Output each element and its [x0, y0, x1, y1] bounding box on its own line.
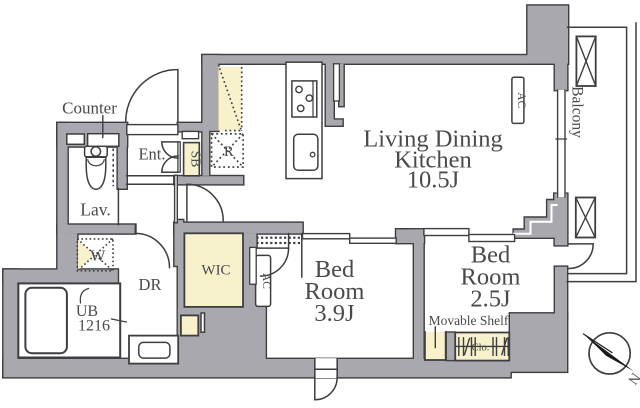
svg-text:WIC: WIC	[201, 263, 230, 279]
svg-text:R: R	[224, 144, 234, 160]
svg-text:Movable Shelf: Movable Shelf	[429, 313, 509, 328]
svg-text:1216: 1216	[78, 318, 110, 335]
svg-text:3.9J: 3.9J	[314, 300, 355, 327]
svg-text:DR: DR	[139, 275, 162, 294]
svg-text:AC: AC	[515, 92, 527, 108]
svg-text:2.5J: 2.5J	[470, 286, 511, 313]
svg-text:Ent.: Ent.	[138, 145, 165, 164]
svg-text:Clo.: Clo.	[472, 343, 490, 354]
svg-text:Counter: Counter	[62, 99, 117, 118]
svg-text:10.5J: 10.5J	[407, 166, 460, 193]
svg-text:Lav.: Lav.	[80, 200, 110, 220]
svg-text:SB: SB	[189, 151, 204, 168]
svg-text:W: W	[90, 248, 106, 265]
svg-text:Balcony: Balcony	[569, 86, 586, 138]
svg-text:AC: AC	[260, 273, 272, 289]
